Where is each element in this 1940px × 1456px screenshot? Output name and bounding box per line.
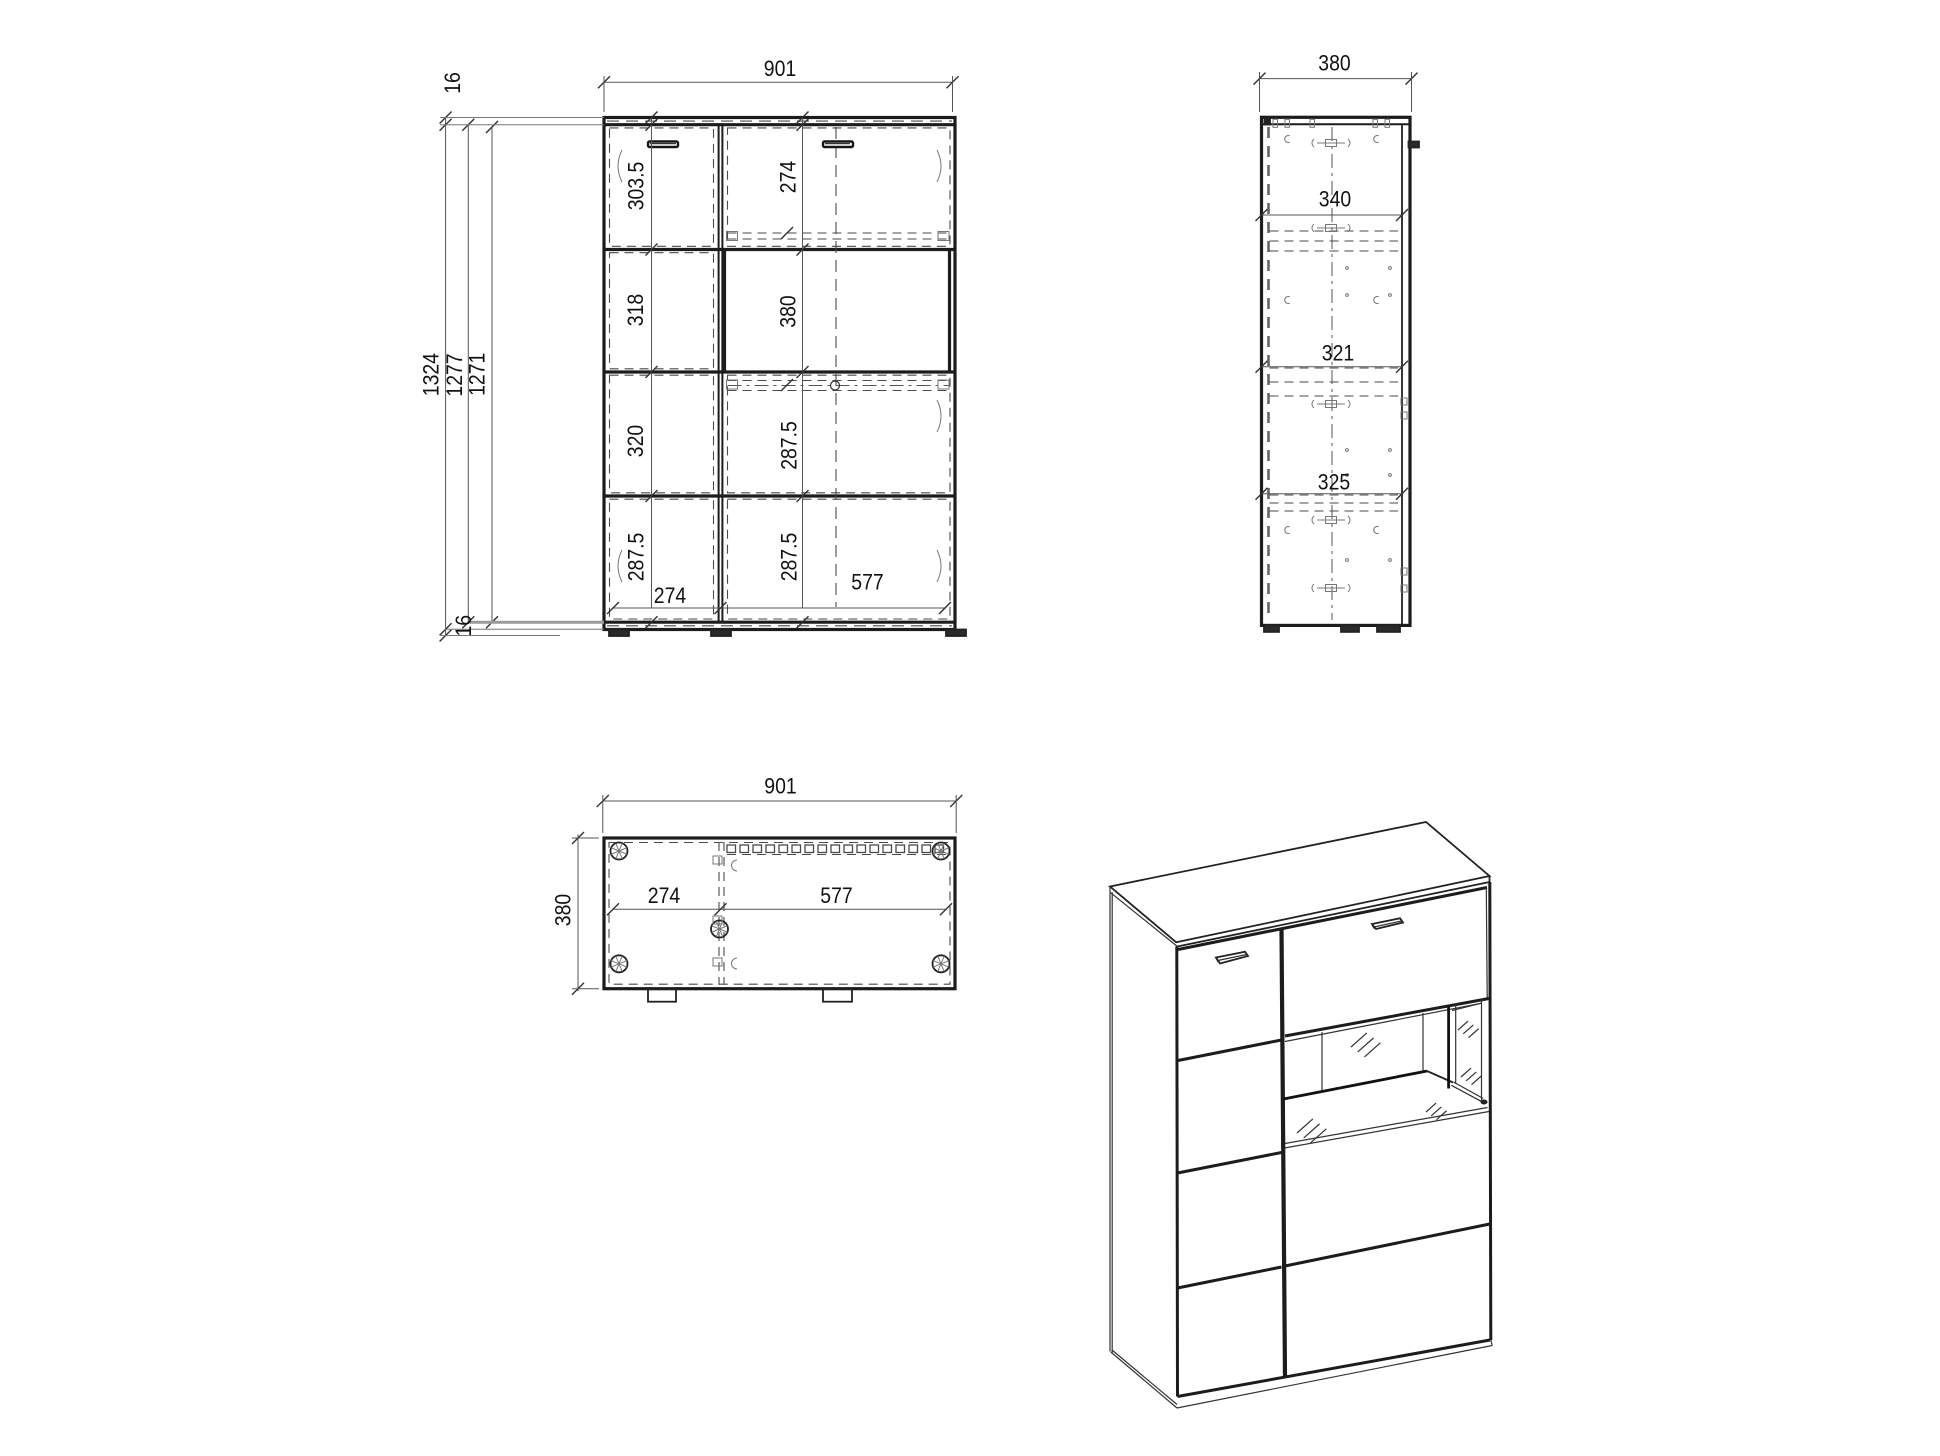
svg-text:320: 320	[623, 425, 648, 457]
svg-text:380: 380	[1318, 51, 1350, 76]
svg-text:318: 318	[623, 294, 648, 326]
svg-text:1271: 1271	[465, 353, 490, 396]
svg-text:274: 274	[654, 583, 686, 608]
svg-text:577: 577	[820, 883, 852, 908]
svg-text:16: 16	[451, 615, 476, 637]
svg-text:325: 325	[1318, 470, 1350, 495]
svg-text:274: 274	[648, 883, 680, 908]
svg-text:380: 380	[776, 295, 801, 327]
svg-text:1277: 1277	[442, 353, 467, 396]
svg-text:1324: 1324	[419, 353, 444, 396]
svg-text:380: 380	[551, 894, 576, 926]
svg-text:287.5: 287.5	[777, 533, 802, 582]
svg-text:287.5: 287.5	[777, 421, 802, 470]
svg-text:16: 16	[440, 72, 465, 94]
svg-text:577: 577	[851, 570, 883, 595]
svg-text:287.5: 287.5	[624, 533, 649, 582]
svg-text:340: 340	[1319, 187, 1351, 212]
svg-text:303.5: 303.5	[624, 162, 649, 211]
svg-text:901: 901	[764, 56, 796, 81]
svg-text:901: 901	[764, 774, 796, 799]
svg-text:274: 274	[776, 161, 801, 193]
svg-text:321: 321	[1322, 341, 1354, 366]
